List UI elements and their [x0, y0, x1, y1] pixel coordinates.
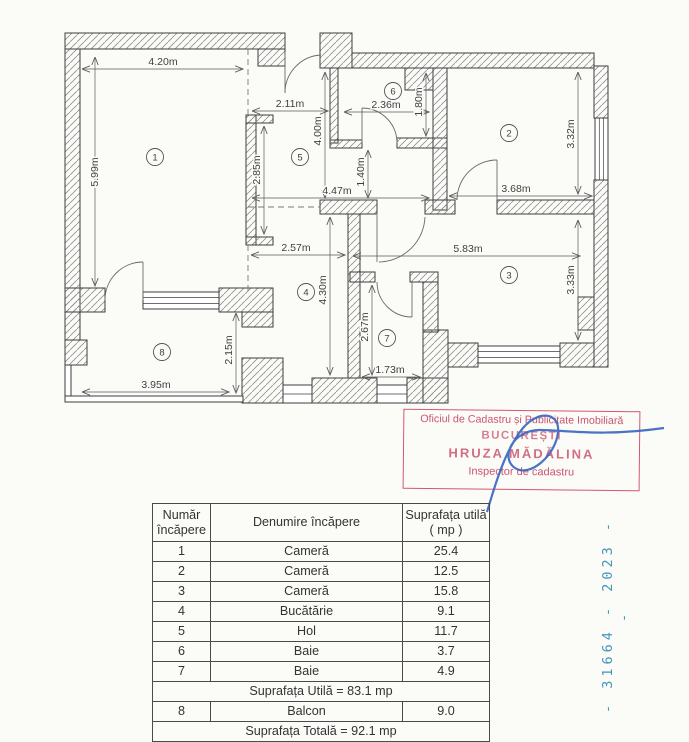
- dim-hall-height: 4.00m: [312, 116, 324, 145]
- room-number-7: 7: [379, 330, 396, 347]
- cell-name: Cameră: [211, 542, 403, 562]
- table-row: 3 Cameră 15.8: [153, 582, 490, 602]
- svg-text:2: 2: [506, 129, 511, 140]
- cell-num: 8: [153, 702, 211, 722]
- table-row: 6 Baie 3.7: [153, 642, 490, 662]
- svg-text:1: 1: [152, 153, 157, 164]
- cell-num: 2: [153, 562, 211, 582]
- dim-room2-width: 3.68m: [501, 183, 530, 195]
- total-area: Suprafața Totală = 92.1 mp: [153, 722, 490, 742]
- total-row: Suprafața Totală = 92.1 mp: [153, 722, 490, 742]
- dim-kitchen-width: 2.57m: [281, 242, 310, 254]
- area-table: Număr încăpere Denumire încăpere Suprafa…: [152, 503, 490, 742]
- dim-hall-entry: 2.11m: [276, 98, 305, 110]
- dim-balcony-width: 3.95m: [141, 379, 170, 391]
- bath7-door: [377, 282, 412, 317]
- room-number-4: 4: [298, 284, 315, 301]
- cell-name: Balcon: [211, 702, 403, 722]
- room-number-3: 3: [501, 267, 518, 284]
- stamp-city-line: BUCUREȘTI: [404, 428, 639, 445]
- stamp-inspector-name: HRUZA MĂDĂLINA: [404, 445, 639, 464]
- window-room1-balcony: [143, 292, 219, 309]
- dim-room1-inner-wall: 2.85m: [251, 155, 263, 184]
- windows: [143, 118, 608, 403]
- svg-text:4: 4: [303, 288, 308, 299]
- dim-room3-width: 5.83m: [453, 243, 482, 255]
- table-row-balcony: 8 Balcon 9.0: [153, 702, 490, 722]
- subtotal-row: Suprafața Utilă = 83.1 mp: [153, 682, 490, 702]
- cell-num: 4: [153, 602, 211, 622]
- header-room-number: Număr încăpere: [153, 504, 211, 542]
- table-row: 5 Hol 11.7: [153, 622, 490, 642]
- cell-area: 11.7: [403, 622, 490, 642]
- table-row: 2 Cameră 12.5: [153, 562, 490, 582]
- room-number-5: 5: [292, 149, 309, 166]
- room-number-8: 8: [154, 344, 171, 361]
- cell-area: 25.4: [403, 542, 490, 562]
- stamp-title-line: Inspector de cadastru: [404, 465, 639, 481]
- dim-room1-height: 5.99m: [89, 157, 101, 186]
- svg-text:3: 3: [506, 271, 511, 282]
- stamp-office-line: Oficiul de Cadastru și Publicitate Imobi…: [404, 413, 639, 429]
- dim-bath6-width: 2.36m: [371, 99, 400, 111]
- registration-number: - 31664 - 2023 - -: [600, 512, 626, 720]
- room-number-1: 1: [147, 149, 164, 166]
- table-header-row: Număr încăpere Denumire încăpere Suprafa…: [153, 504, 490, 542]
- room-number-6: 6: [385, 83, 402, 100]
- window-bath7: [377, 385, 407, 403]
- cell-num: 1: [153, 542, 211, 562]
- cell-area: 9.0: [403, 702, 490, 722]
- cell-name: Cameră: [211, 582, 403, 602]
- cell-area: 12.5: [403, 562, 490, 582]
- room-number-2: 2: [501, 125, 518, 142]
- table-row: 1 Cameră 25.4: [153, 542, 490, 562]
- balcony-door: [105, 262, 143, 300]
- cell-name: Bucătărie: [211, 602, 403, 622]
- svg-text:7: 7: [384, 334, 389, 345]
- window-kitchen: [283, 385, 312, 403]
- cell-name: Hol: [211, 622, 403, 642]
- cadastre-stamp: Oficiul de Cadastru și Publicitate Imobi…: [403, 409, 641, 491]
- window-room3: [478, 346, 560, 363]
- svg-text:8: 8: [159, 348, 164, 359]
- entrance-door: [285, 52, 321, 93]
- room3-door: [377, 215, 425, 262]
- cell-name: Baie: [211, 642, 403, 662]
- dim-hall-width: 4.47m: [322, 185, 351, 197]
- bath6-door: [362, 108, 397, 143]
- dim-hall-passage: 1.40m: [355, 157, 367, 186]
- svg-text:5: 5: [297, 153, 302, 164]
- table-row: 7 Baie 4.9: [153, 662, 490, 682]
- subtotal-useful-area: Suprafața Utilă = 83.1 mp: [153, 682, 490, 702]
- dim-kitchen-height: 4.30m: [317, 275, 329, 304]
- window-room2: [595, 118, 608, 180]
- header-useful-area: Suprafața utilă ( mp ): [403, 504, 490, 542]
- header-room-name: Denumire încăpere: [211, 504, 403, 542]
- cell-area: 15.8: [403, 582, 490, 602]
- dim-balcony-height: 2.15m: [223, 335, 235, 364]
- cell-num: 6: [153, 642, 211, 662]
- cell-num: 5: [153, 622, 211, 642]
- cell-area: 9.1: [403, 602, 490, 622]
- dim-bath6-height: 1.80m: [413, 87, 425, 116]
- cell-area: 3.7: [403, 642, 490, 662]
- dim-bath7-height: 2.67m: [359, 312, 371, 341]
- cell-name: Cameră: [211, 562, 403, 582]
- table-row: 4 Bucătărie 9.1: [153, 602, 490, 622]
- dim-bath7-width: 1.73m: [375, 364, 404, 376]
- dim-room1-width: 4.20m: [148, 56, 177, 68]
- dim-room3-height: 3.33m: [565, 265, 577, 294]
- svg-text:6: 6: [390, 87, 395, 98]
- room2-door: [457, 160, 497, 200]
- cell-num: 3: [153, 582, 211, 602]
- cell-name: Baie: [211, 662, 403, 682]
- cell-num: 7: [153, 662, 211, 682]
- dim-room2-height: 3.32m: [565, 119, 577, 148]
- cell-area: 4.9: [403, 662, 490, 682]
